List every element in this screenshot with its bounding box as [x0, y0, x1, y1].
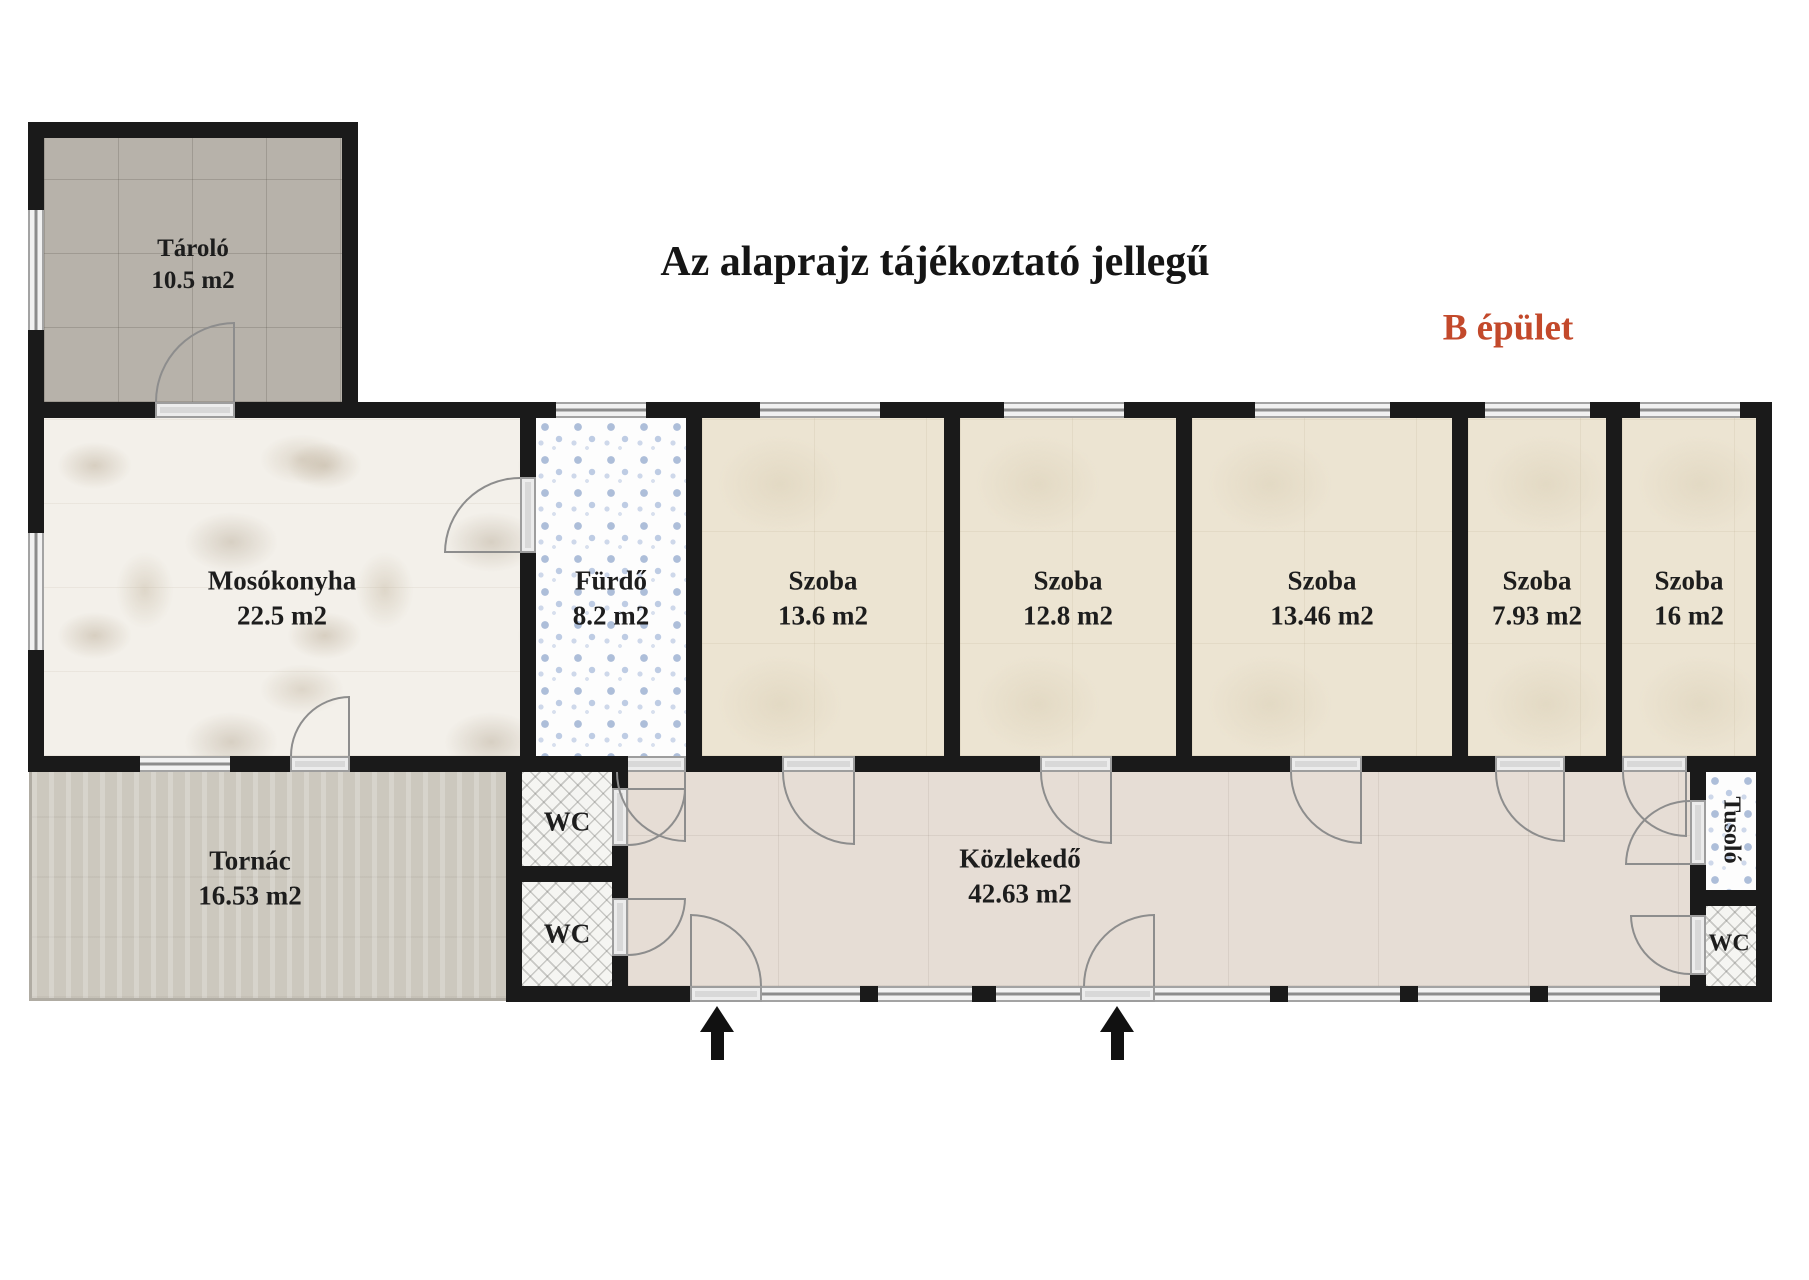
window [762, 986, 860, 1002]
room-label-furdo: Fürdő 8.2 m2 [573, 563, 650, 632]
room-label-tusolo: Tusoló [1716, 796, 1747, 863]
wall [1400, 986, 1418, 1002]
wall [855, 756, 1040, 772]
room-label-szoba5: Szoba 16 m2 [1654, 563, 1724, 632]
wall [646, 402, 760, 418]
window [1485, 402, 1590, 418]
wall [1270, 986, 1288, 1002]
room-name: Tusoló [1716, 796, 1747, 863]
wall [1124, 402, 1255, 418]
building-label: B épület [1443, 307, 1574, 350]
door-threshold [1290, 756, 1362, 772]
room-name: Szoba [1654, 563, 1724, 598]
window [140, 756, 230, 772]
window [28, 533, 44, 650]
room-label-kozlekedo: Közlekedő 42.63 m2 [959, 841, 1081, 910]
room-label-tarolo: Tároló 10.5 m2 [151, 233, 234, 297]
room-area: 16.53 m2 [198, 878, 302, 913]
door-threshold [1495, 756, 1565, 772]
room-label-wc-bottom: WC [544, 917, 591, 952]
wall [972, 986, 996, 1002]
wall [235, 402, 556, 418]
door-threshold [1690, 800, 1706, 865]
window [1640, 402, 1740, 418]
room-label-mosokonyha: Mosókonyha 22.5 m2 [208, 563, 357, 632]
room-name: Tároló [151, 233, 234, 265]
wall [1452, 418, 1468, 756]
wall [506, 866, 628, 882]
room-label-wc-top: WC [544, 805, 591, 840]
door-threshold [782, 756, 855, 772]
room-label-szoba1: Szoba 13.6 m2 [778, 563, 868, 632]
window [1548, 986, 1660, 1002]
room-area: 42.63 m2 [959, 876, 1081, 911]
wall [342, 122, 358, 418]
door-threshold [1690, 915, 1706, 975]
arrow-head [700, 1006, 734, 1032]
arrow-stem [711, 1032, 724, 1060]
wall [1690, 756, 1706, 800]
wall [1606, 418, 1622, 772]
window [556, 402, 646, 418]
room-area: 13.46 m2 [1270, 598, 1374, 633]
entrance-arrow-icon [700, 1006, 734, 1060]
door-threshold [520, 477, 536, 553]
room-name: Mosókonyha [208, 563, 357, 598]
floor-plan: Az alaprajz tájékoztató jellegű B épület [0, 0, 1809, 1280]
room-label-szoba3: Szoba 13.46 m2 [1270, 563, 1374, 632]
room-name: Szoba [778, 563, 868, 598]
wall [1690, 890, 1772, 906]
room-area: 7.93 m2 [1492, 598, 1582, 633]
window [760, 402, 880, 418]
room-name: Tornác [198, 843, 302, 878]
wall [28, 418, 44, 533]
window [1255, 402, 1390, 418]
wall [1660, 986, 1772, 1002]
wall [1565, 756, 1617, 772]
room-name: WC [544, 805, 591, 840]
door-threshold [1622, 756, 1687, 772]
window [878, 986, 972, 1002]
window [28, 210, 44, 330]
room-label-szoba2: Szoba 12.8 m2 [1023, 563, 1113, 632]
page-title: Az alaprajz tájékoztató jellegű [660, 238, 1209, 286]
room-area: 12.8 m2 [1023, 598, 1113, 633]
room-label-szoba4: Szoba 7.93 m2 [1492, 563, 1582, 632]
wall [28, 650, 44, 772]
room-name: Közlekedő [959, 841, 1081, 876]
wall [28, 122, 358, 138]
window [1004, 402, 1124, 418]
room-label-tornac: Tornác 16.53 m2 [198, 843, 302, 912]
wall [702, 756, 782, 772]
room-area: 22.5 m2 [208, 598, 357, 633]
room-name: WC [1708, 929, 1749, 960]
wall [520, 553, 536, 756]
door-threshold [290, 756, 350, 772]
wall [1112, 756, 1290, 772]
wall [686, 418, 702, 772]
room-area: 10.5 m2 [151, 265, 234, 297]
room-name: WC [544, 917, 591, 952]
wall [230, 756, 290, 772]
wall [1362, 756, 1495, 772]
wall [28, 756, 140, 772]
wall [520, 418, 536, 477]
room-area: 16 m2 [1654, 598, 1724, 633]
wall [1740, 402, 1772, 418]
wall [1390, 402, 1485, 418]
wall [1176, 418, 1192, 756]
wall [1590, 402, 1640, 418]
wall [880, 402, 1004, 418]
window [1155, 986, 1270, 1002]
room-name: Fürdő [573, 563, 650, 598]
door-threshold [612, 898, 628, 956]
room-label-wc-right: WC [1708, 929, 1749, 960]
wall [944, 418, 960, 756]
entrance-threshold [1080, 986, 1155, 1002]
wall [1756, 418, 1772, 1002]
wall [1530, 986, 1548, 1002]
entrance-arrow-icon [1100, 1006, 1134, 1060]
arrow-stem [1111, 1032, 1124, 1060]
room-name: Szoba [1023, 563, 1113, 598]
window [1418, 986, 1530, 1002]
window [1288, 986, 1400, 1002]
room-area: 8.2 m2 [573, 598, 650, 633]
room-name: Szoba [1492, 563, 1582, 598]
wall [520, 986, 690, 1002]
room-name: Szoba [1270, 563, 1374, 598]
wall [28, 122, 44, 210]
wall [28, 402, 155, 418]
room-area: 13.6 m2 [778, 598, 868, 633]
window [996, 986, 1080, 1002]
arrow-head [1100, 1006, 1134, 1032]
wall [860, 986, 878, 1002]
wall [350, 756, 615, 772]
door-threshold [1040, 756, 1112, 772]
door-threshold [155, 402, 235, 418]
entrance-threshold [690, 986, 762, 1002]
